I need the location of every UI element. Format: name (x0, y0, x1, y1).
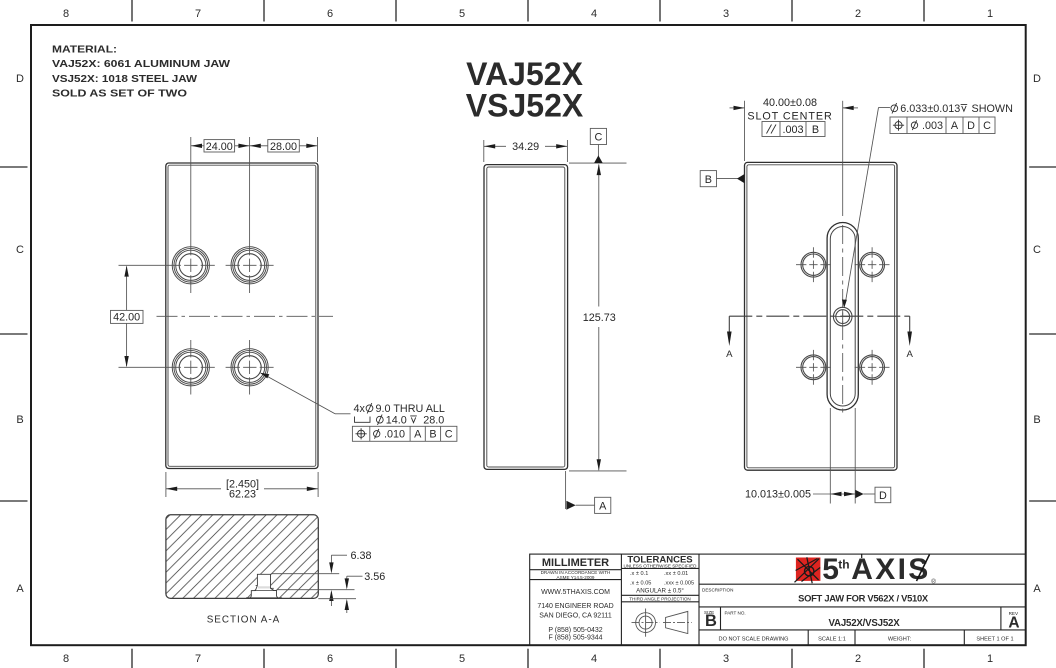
svg-text:6.033±0.013: 6.033±0.013 (900, 103, 960, 115)
svg-text:C: C (594, 132, 602, 144)
svg-text:DO NOT SCALE DRAWING: DO NOT SCALE DRAWING (719, 637, 789, 643)
svg-text:A: A (599, 501, 607, 513)
svg-text:VAJ52X: 6061 ALUMINUM JAW: VAJ52X: 6061 ALUMINUM JAW (52, 59, 230, 70)
svg-text:7: 7 (195, 8, 201, 20)
svg-text:A: A (16, 583, 24, 595)
svg-text:VSJ52X: 1018 STEEL JAW: VSJ52X: 1018 STEEL JAW (52, 74, 197, 85)
svg-text:.003: .003 (782, 124, 803, 136)
svg-text:WEIGHT:: WEIGHT: (888, 637, 912, 643)
svg-text:B: B (705, 612, 717, 630)
svg-text:SLOT CENTER: SLOT CENTER (747, 111, 832, 123)
svg-text:B: B (705, 174, 712, 186)
svg-text:42.00: 42.00 (113, 312, 140, 324)
svg-text:ASME Y14.5-2009: ASME Y14.5-2009 (557, 575, 595, 580)
svg-text:THIRD ANGLE PROJECTION: THIRD ANGLE PROJECTION (629, 596, 691, 601)
svg-text:5: 5 (459, 8, 465, 20)
svg-text:.xxx ± 0.005: .xxx ± 0.005 (664, 581, 694, 587)
svg-text:34.29: 34.29 (512, 141, 539, 153)
svg-text:D: D (967, 120, 975, 132)
svg-text:DESCRIPTION: DESCRIPTION (702, 587, 733, 592)
svg-text:PART NO.: PART NO. (725, 610, 746, 615)
svg-text:SHOWN: SHOWN (972, 103, 1013, 115)
svg-text:C: C (445, 429, 453, 441)
svg-text:SOFT JAW FOR V562X / V510X: SOFT JAW FOR V562X / V510X (798, 592, 929, 603)
svg-text:7: 7 (195, 653, 201, 665)
svg-text:C: C (983, 120, 991, 132)
svg-text:D: D (1033, 73, 1041, 85)
svg-text:MATERIAL:: MATERIAL: (52, 45, 117, 56)
svg-text:ANGULAR ± 0.5°: ANGULAR ± 0.5° (636, 588, 684, 595)
svg-text:B: B (1033, 414, 1040, 426)
svg-text:UNLESS OTHERWISE SPECIFIED: UNLESS OTHERWISE SPECIFIED (624, 564, 698, 569)
svg-text:2: 2 (855, 8, 861, 20)
svg-text:MILLIMETER: MILLIMETER (542, 557, 609, 569)
svg-text:®: ® (931, 578, 936, 585)
svg-text:.x ± 0.05: .x ± 0.05 (630, 581, 651, 587)
svg-text:A: A (951, 120, 959, 132)
svg-text:3: 3 (723, 653, 729, 665)
svg-text:SHEET 1 OF 1: SHEET 1 OF 1 (976, 637, 1013, 643)
svg-text:A: A (1033, 583, 1041, 595)
svg-text:9.0 THRU ALL: 9.0 THRU ALL (376, 403, 445, 415)
svg-text:5: 5 (459, 653, 465, 665)
svg-text:8: 8 (63, 653, 69, 665)
svg-text:WWW.5THAXIS.COM: WWW.5THAXIS.COM (541, 589, 610, 596)
svg-text:AXIS: AXIS (851, 553, 930, 586)
svg-text:3.56: 3.56 (364, 571, 385, 583)
svg-text:A: A (906, 349, 913, 360)
svg-text:5: 5 (822, 553, 839, 586)
svg-text:1: 1 (987, 653, 993, 665)
svg-text:7140 ENGINEER ROAD: 7140 ENGINEER ROAD (537, 603, 613, 610)
svg-text:D: D (16, 73, 24, 85)
svg-text:.xx ± 0.01: .xx ± 0.01 (664, 571, 688, 577)
svg-text:1: 1 (987, 8, 993, 20)
svg-text:40.00±0.08: 40.00±0.08 (763, 97, 817, 109)
svg-text:VSJ52X: VSJ52X (466, 88, 584, 124)
svg-text:6: 6 (327, 653, 333, 665)
svg-text:VAJ52X/VSJ52X: VAJ52X/VSJ52X (828, 618, 900, 629)
svg-text:C: C (1033, 244, 1041, 256)
svg-text:28.00: 28.00 (270, 141, 297, 153)
svg-text:3: 3 (723, 8, 729, 20)
svg-text:C: C (16, 244, 24, 256)
svg-text:.010: .010 (384, 429, 405, 441)
svg-text:SOLD AS SET OF TWO: SOLD AS SET OF TWO (52, 88, 187, 99)
svg-text:th: th (838, 557, 849, 571)
svg-text:A: A (726, 349, 733, 360)
svg-text:B: B (812, 124, 819, 136)
svg-text:SAN DIEGO, CA 92111: SAN DIEGO, CA 92111 (539, 612, 612, 619)
svg-text:6.38: 6.38 (351, 550, 372, 562)
svg-text:4: 4 (591, 653, 597, 665)
svg-text:B: B (16, 414, 23, 426)
svg-text:P (858) 505-0432: P (858) 505-0432 (548, 627, 602, 634)
svg-text:8: 8 (63, 8, 69, 20)
svg-text:A: A (1008, 615, 1019, 632)
svg-text:10.013±0.005: 10.013±0.005 (745, 489, 811, 501)
svg-text:.x ± 0.1: .x ± 0.1 (630, 571, 648, 577)
svg-text:SCALE 1:1: SCALE 1:1 (818, 637, 846, 643)
svg-text:6: 6 (327, 8, 333, 20)
svg-text:24.00: 24.00 (206, 141, 233, 153)
svg-text:.003: .003 (922, 120, 943, 132)
svg-text:14.0: 14.0 (386, 415, 407, 427)
svg-text:4: 4 (591, 8, 597, 20)
svg-text:125.73: 125.73 (583, 312, 616, 324)
svg-text:F (858) 505-9344: F (858) 505-9344 (548, 634, 602, 641)
svg-text:28.0: 28.0 (423, 415, 444, 427)
svg-text:2: 2 (855, 653, 861, 665)
svg-text:62.23: 62.23 (229, 489, 256, 501)
svg-text:B: B (429, 429, 436, 441)
svg-text:SECTION A-A: SECTION A-A (207, 614, 281, 625)
svg-text:D: D (879, 490, 887, 502)
svg-text:A: A (414, 429, 422, 441)
svg-text:4x: 4x (354, 403, 366, 415)
